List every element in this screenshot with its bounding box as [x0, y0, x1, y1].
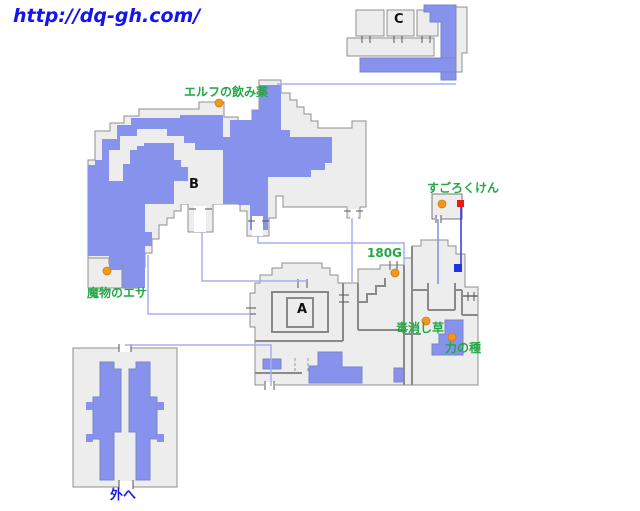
cave-mid-door-slot	[252, 216, 263, 236]
c-hall	[347, 38, 434, 56]
teleport-red-square	[457, 200, 464, 207]
site-url-link[interactable]: http://dq-gh.com/	[13, 5, 200, 27]
exit-room-water-notch-2	[157, 402, 164, 410]
teleport-blue-square	[454, 264, 462, 272]
c-water-corridor	[360, 58, 456, 72]
cave-b-door-slot	[194, 206, 206, 232]
label-elf-potion: エルフの飲み薬	[184, 86, 268, 98]
c-room-1	[356, 10, 384, 36]
dungeon-map	[0, 0, 640, 511]
exit-room-floor	[73, 348, 177, 487]
complex-water-small	[394, 368, 404, 382]
exit-room-water-notch-3	[86, 434, 93, 442]
item-sugoroku-dot	[438, 200, 446, 208]
c-right-strip	[456, 7, 467, 72]
label-monster-bait: 魔物のエサ	[87, 287, 147, 299]
complex-bottom-gap	[264, 382, 275, 389]
map-stage: エルフの飲み薬魔物のエサすごろくけん180G毒消し草力の種外へABC http:…	[0, 0, 640, 511]
label-exit: 外へ	[110, 489, 136, 502]
marker-letter-a: A	[297, 303, 307, 316]
complex-water-sw	[263, 359, 281, 369]
label-sugoroku-ticket: すごろくけん	[427, 182, 499, 194]
exit-room-top-gap	[119, 345, 131, 352]
cave-bait-pocket-water	[109, 258, 122, 270]
exit-room-water-notch-1	[86, 402, 93, 410]
label-antidote-herb: 毒消し草	[396, 322, 444, 334]
item-elf-potion-dot	[215, 99, 223, 107]
label-strength-seed: 力の種	[445, 342, 481, 354]
item-monster-bait-dot	[103, 267, 111, 275]
item-strength-seed-dot	[448, 333, 456, 341]
item-180g-dot	[391, 269, 399, 277]
link-bait-to-complex	[148, 255, 250, 314]
marker-letter-c: C	[394, 13, 404, 26]
label-180g: 180G	[367, 247, 402, 259]
marker-letter-b: B	[189, 178, 199, 191]
exit-room-water-notch-4	[157, 434, 164, 442]
complex-floor	[250, 240, 478, 385]
